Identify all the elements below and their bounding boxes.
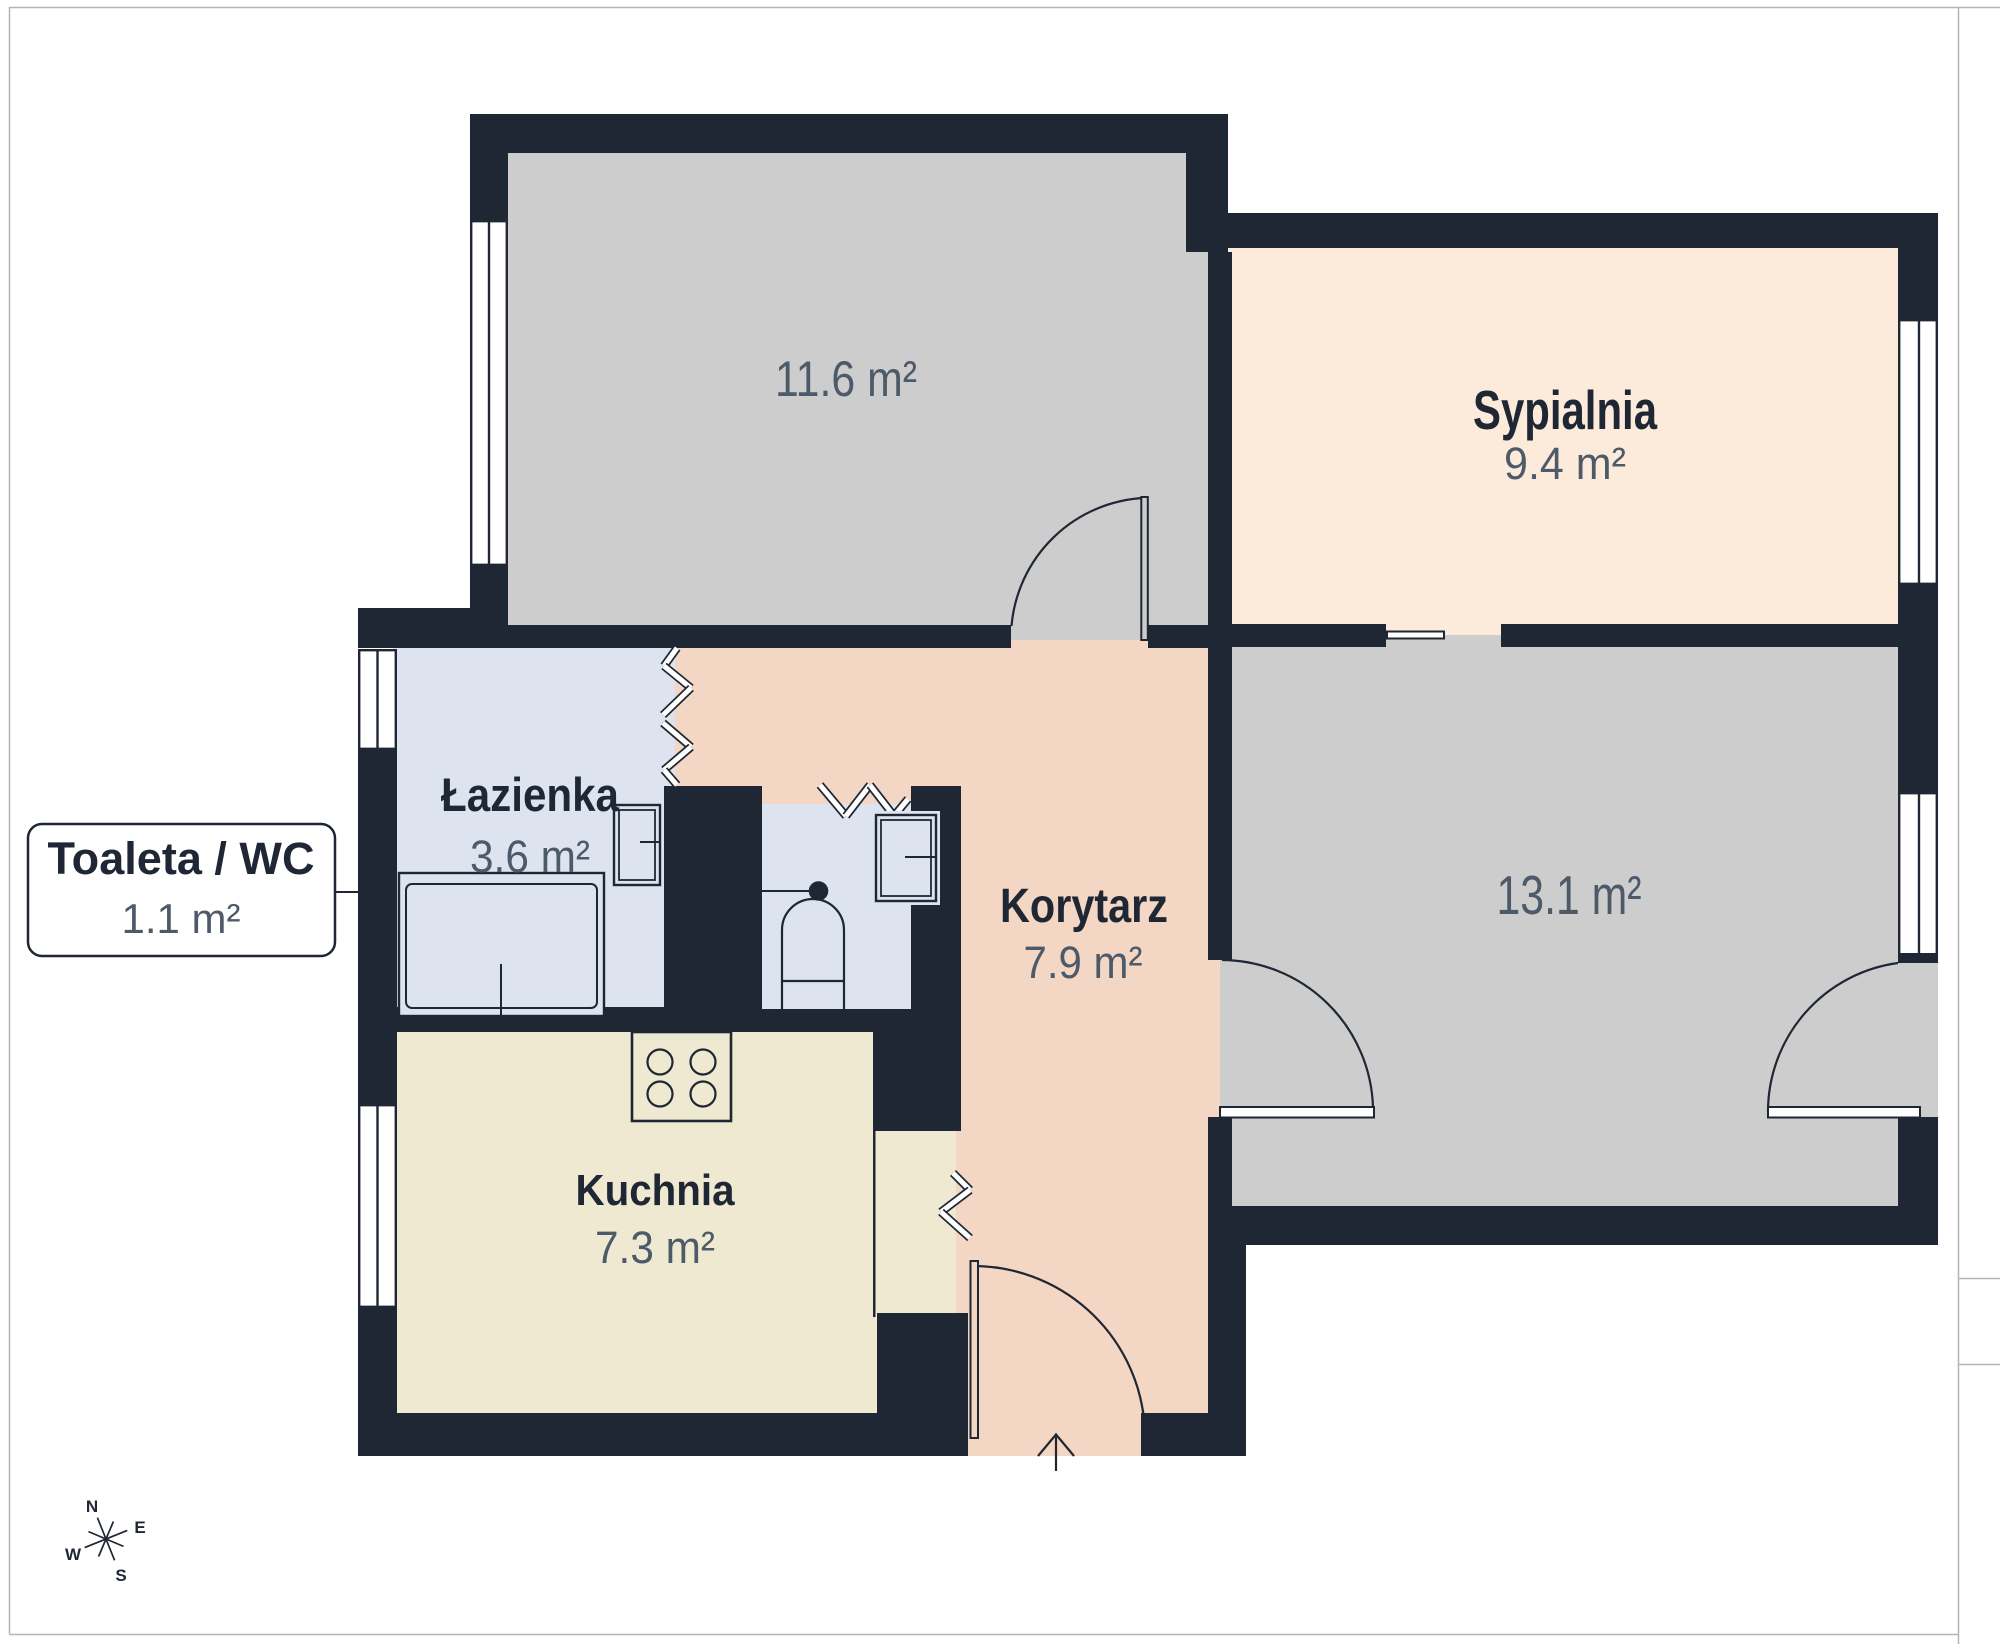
- svg-text:E: E: [134, 1518, 145, 1537]
- svg-text:S: S: [115, 1566, 126, 1585]
- svg-text:13.1 m²: 13.1 m²: [1497, 864, 1642, 926]
- svg-text:W: W: [65, 1545, 82, 1564]
- svg-text:11.6 m²: 11.6 m²: [775, 351, 917, 407]
- svg-text:N: N: [86, 1497, 98, 1516]
- svg-text:1.1 m²: 1.1 m²: [122, 895, 241, 942]
- svg-text:Toaleta / WC: Toaleta / WC: [48, 833, 315, 884]
- svg-text:Łazienka: Łazienka: [441, 768, 620, 821]
- svg-text:Kuchnia: Kuchnia: [576, 1166, 735, 1215]
- svg-text:9.4 m²: 9.4 m²: [1504, 438, 1626, 489]
- svg-text:7.3 m²: 7.3 m²: [595, 1222, 715, 1273]
- svg-text:7.9 m²: 7.9 m²: [1024, 937, 1143, 988]
- svg-text:Sypialnia: Sypialnia: [1473, 379, 1657, 441]
- svg-text:Korytarz: Korytarz: [1000, 880, 1168, 933]
- svg-text:3.6 m²: 3.6 m²: [470, 831, 590, 882]
